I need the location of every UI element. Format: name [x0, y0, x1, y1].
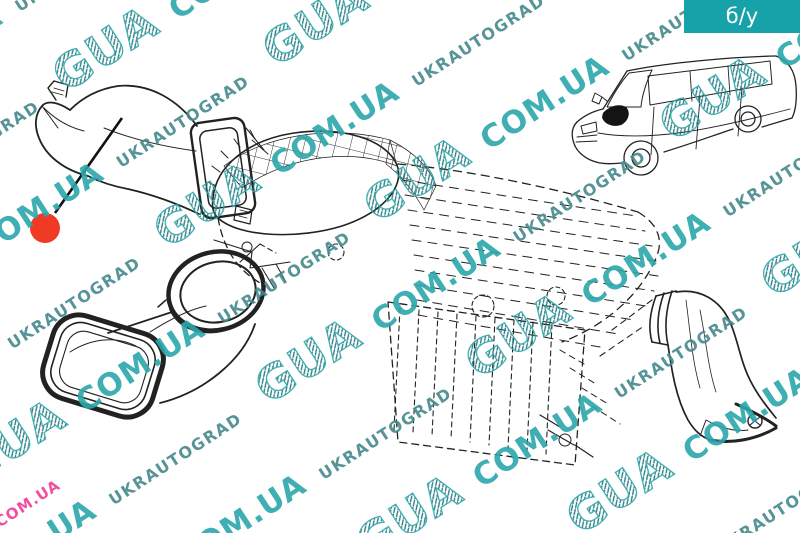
- indicator-leader-line: [55, 118, 122, 213]
- parts-diagram: [0, 0, 800, 533]
- lower-air-duct: [36, 242, 276, 424]
- van-part-location-marker: [602, 105, 629, 126]
- part-indicator: [30, 118, 122, 243]
- hvac-assembly: [208, 130, 659, 465]
- upper-air-duct: [36, 81, 264, 219]
- red-dot-marker: [30, 213, 60, 243]
- condition-badge: б/у: [684, 0, 800, 33]
- right-air-duct: [650, 291, 776, 442]
- product-image: GUACOM.UAUKRAUTOGRADGUACOM.UAUKRAUTOGRAD…: [0, 0, 800, 533]
- van-mirror: [592, 93, 607, 104]
- van-illustration: [572, 56, 796, 175]
